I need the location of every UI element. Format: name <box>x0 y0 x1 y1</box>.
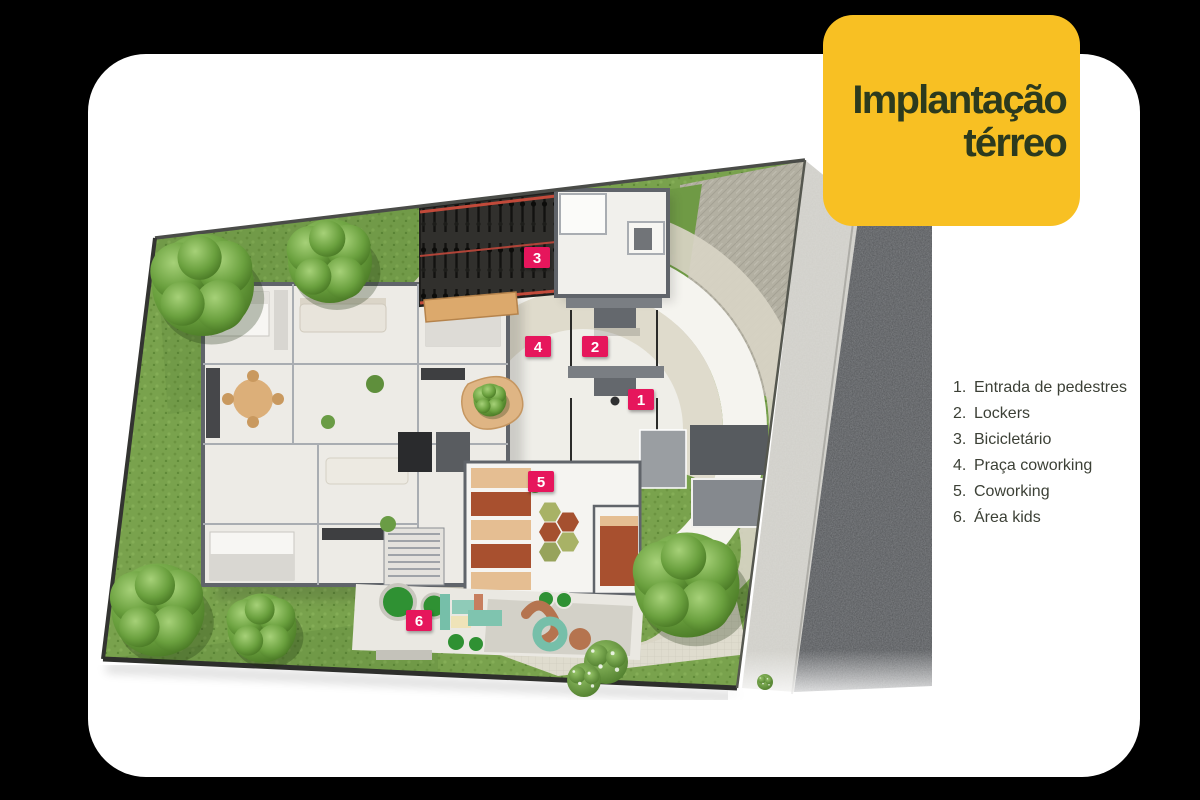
marker-4: 4 <box>525 336 551 357</box>
legend-item-number: 4. <box>953 458 974 474</box>
dining-table <box>233 379 273 419</box>
marker-2: 2 <box>582 336 608 357</box>
legend-item: 3. Bicicletário <box>953 432 1127 448</box>
legend-item-label: Bicicletário <box>974 432 1051 448</box>
legend-item: 5. Coworking <box>953 484 1127 500</box>
desk <box>471 520 531 540</box>
legend-item-label: Coworking <box>974 484 1050 500</box>
kitchen-counter <box>206 368 220 438</box>
title-line-1: Implantação <box>852 79 1066 122</box>
indoor-plant <box>366 375 384 393</box>
marker-5: 5 <box>528 471 554 492</box>
sofa <box>600 526 638 586</box>
lobby-building <box>556 190 674 302</box>
play-panel <box>440 594 450 630</box>
legend-item-number: 6. <box>953 510 974 526</box>
svg-text:1: 1 <box>637 392 645 409</box>
sofa <box>471 492 531 516</box>
marker-6: 6 <box>406 610 432 631</box>
marker-3: 3 <box>524 247 550 268</box>
legend-item-label: Área kids <box>974 510 1041 526</box>
page: { "page": { "background_color": "#000000… <box>0 0 1200 800</box>
legend-item: 4. Praça coworking <box>953 458 1127 474</box>
kitchen-counter <box>421 368 465 380</box>
legend-item-number: 5. <box>953 484 974 500</box>
desk <box>471 468 531 488</box>
title-line-2: térreo <box>852 122 1066 165</box>
legend: 1. Entrada de pedestres 2. Lockers 3. Bi… <box>953 380 1127 536</box>
legend-item-label: Entrada de pedestres <box>974 380 1127 396</box>
svg-text:5: 5 <box>537 474 545 491</box>
svg-text:3: 3 <box>533 250 541 267</box>
marker-1: 1 <box>628 389 654 410</box>
legend-item: 6. Área kids <box>953 510 1127 526</box>
indoor-plant <box>321 415 335 429</box>
svg-text:6: 6 <box>415 613 423 630</box>
lobby-desk <box>634 228 652 250</box>
desk <box>471 572 531 590</box>
legend-item-label: Praça coworking <box>974 458 1092 474</box>
legend-item-label: Lockers <box>974 406 1030 422</box>
svg-text:2: 2 <box>591 339 599 356</box>
wardrobe <box>274 290 288 350</box>
legend-item-number: 1. <box>953 380 974 396</box>
legend-item: 1. Entrada de pedestres <box>953 380 1127 396</box>
sofa <box>326 458 408 484</box>
page-title: Implantação térreo <box>852 79 1066 165</box>
indoor-plant <box>380 516 396 532</box>
legend-item-number: 3. <box>953 432 974 448</box>
svg-text:4: 4 <box>534 339 543 356</box>
title-badge: Implantação térreo <box>823 15 1080 226</box>
legend-item-number: 2. <box>953 406 974 422</box>
legend-item: 2. Lockers <box>953 406 1127 422</box>
shaft <box>398 432 432 472</box>
sofa <box>471 544 531 568</box>
